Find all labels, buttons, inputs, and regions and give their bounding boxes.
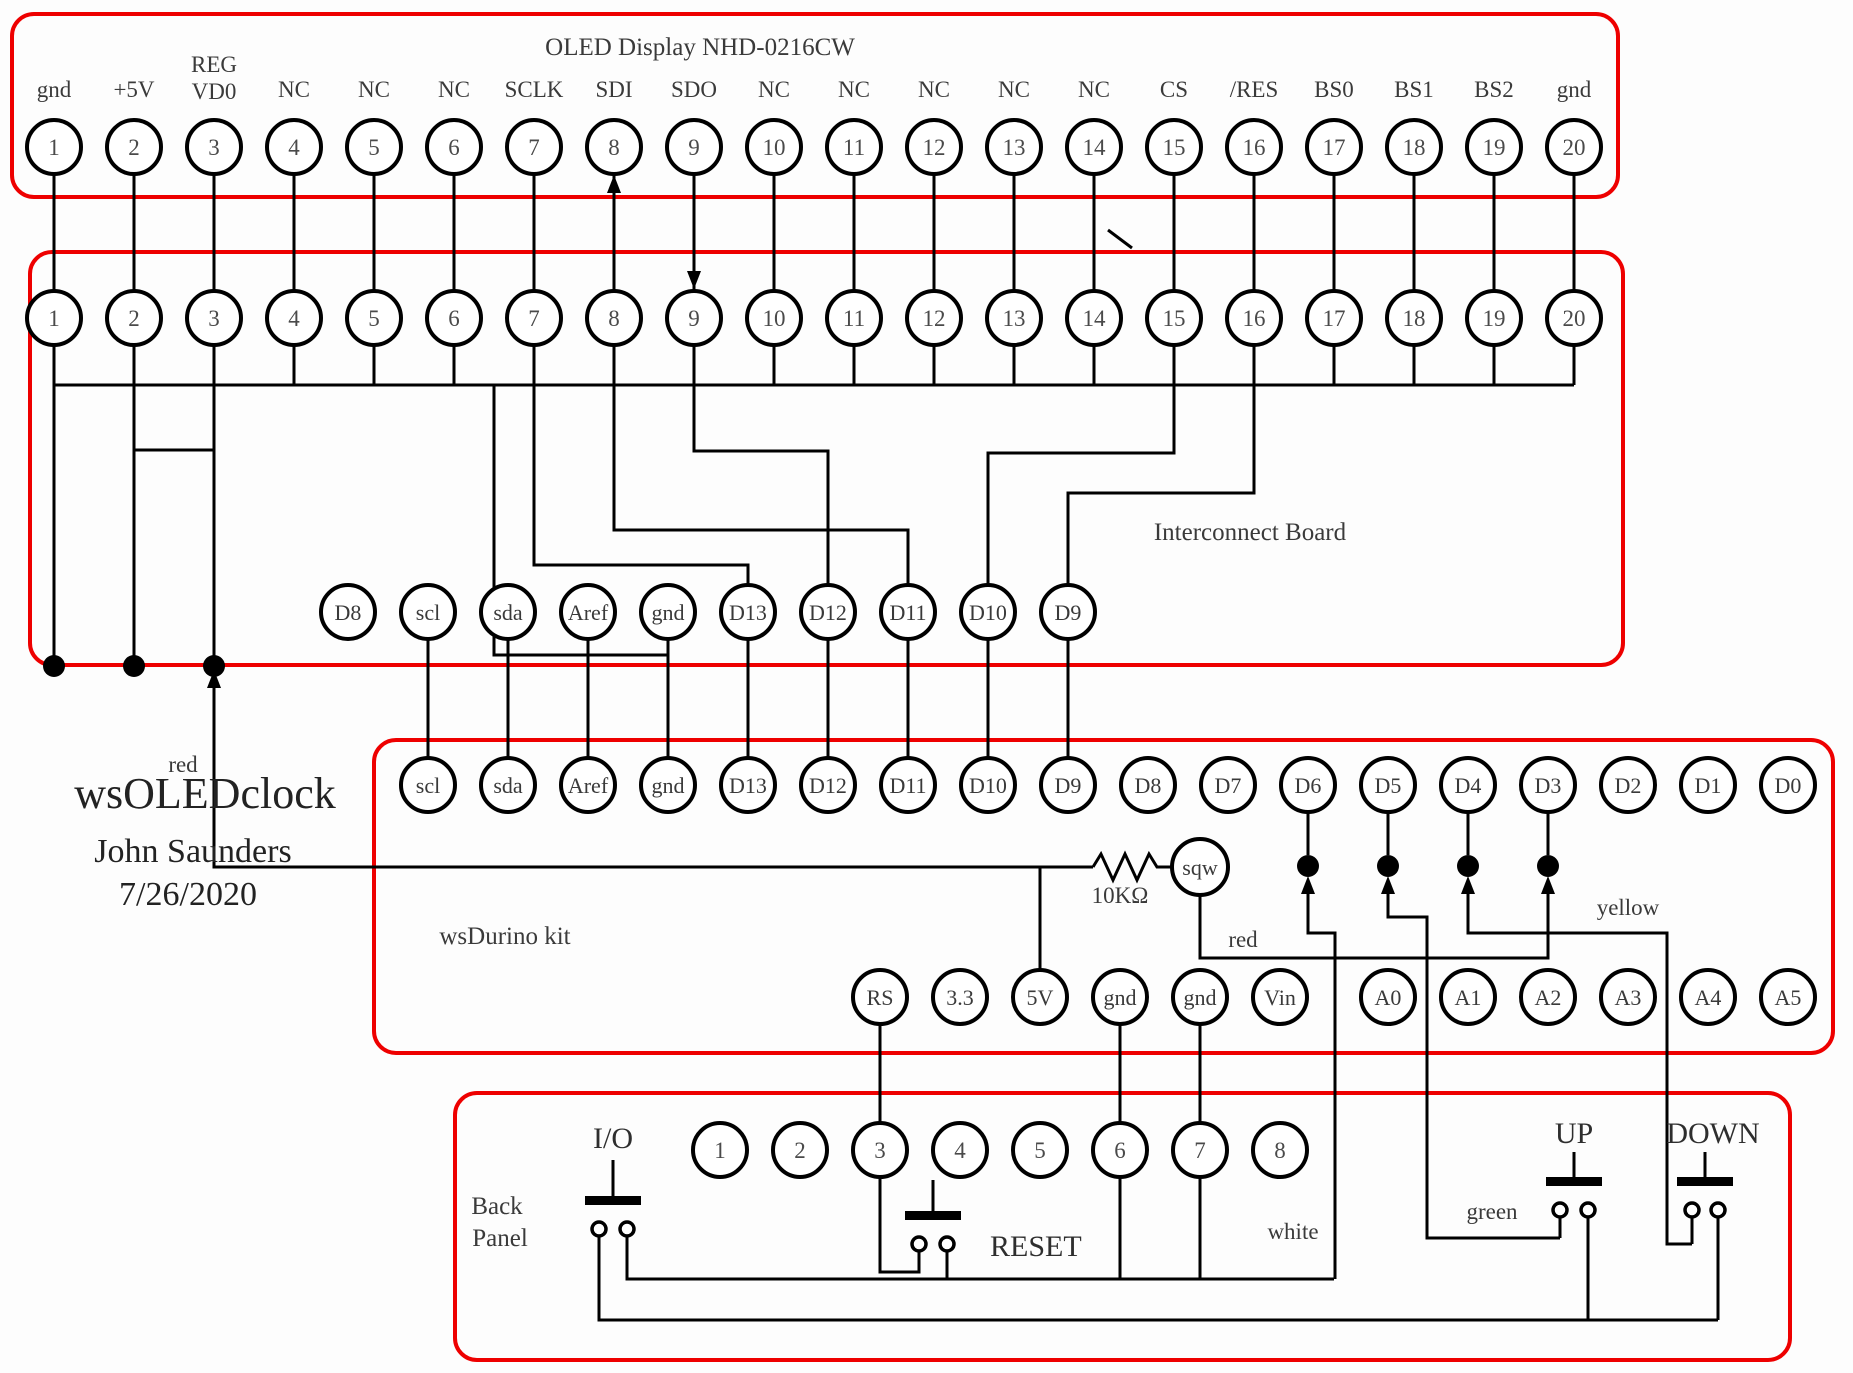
svg-text:NC: NC bbox=[758, 77, 790, 102]
red-wire-label-right: red bbox=[1228, 927, 1258, 952]
svg-text:/RES: /RES bbox=[1230, 77, 1279, 102]
svg-text:2: 2 bbox=[128, 306, 140, 331]
svg-text:D5: D5 bbox=[1375, 773, 1402, 798]
arrow-up-icon bbox=[1301, 876, 1315, 894]
wsdurino-to-backpanel-wires bbox=[599, 1024, 1718, 1320]
svg-text:A2: A2 bbox=[1535, 985, 1562, 1010]
svg-text:16: 16 bbox=[1243, 306, 1266, 331]
svg-text:7: 7 bbox=[528, 135, 540, 160]
svg-text:8: 8 bbox=[608, 135, 620, 160]
pin3-to-reset-wire bbox=[880, 1177, 919, 1272]
svg-text:gnd: gnd bbox=[1557, 77, 1592, 102]
wsdurino-title: wsDurino kit bbox=[439, 923, 570, 950]
svg-text:7: 7 bbox=[1194, 1138, 1206, 1163]
svg-text:4: 4 bbox=[288, 135, 300, 160]
svg-text:A4: A4 bbox=[1695, 985, 1722, 1010]
svg-text:Aref: Aref bbox=[568, 600, 609, 625]
svg-text:scl: scl bbox=[416, 600, 440, 625]
svg-text:SDO: SDO bbox=[671, 77, 717, 102]
res-to-d9-wire bbox=[1068, 345, 1254, 585]
svg-text:D0: D0 bbox=[1775, 773, 1802, 798]
svg-text:scl: scl bbox=[416, 773, 440, 798]
reset-switch-label: RESET bbox=[990, 1230, 1082, 1263]
svg-text:Aref: Aref bbox=[568, 773, 609, 798]
up-switch: UP bbox=[1546, 1117, 1602, 1217]
project-date: 7/26/2020 bbox=[119, 876, 257, 913]
svg-text:D4: D4 bbox=[1455, 773, 1482, 798]
svg-text:gnd: gnd bbox=[1184, 985, 1217, 1010]
resistor-10k bbox=[1093, 854, 1172, 880]
svg-text:1: 1 bbox=[48, 306, 60, 331]
svg-text:2: 2 bbox=[794, 1138, 806, 1163]
svg-text:4: 4 bbox=[954, 1138, 966, 1163]
svg-text:SDI: SDI bbox=[595, 77, 632, 102]
switch-terminal bbox=[620, 1222, 634, 1236]
svg-text:17: 17 bbox=[1323, 306, 1346, 331]
svg-text:NC: NC bbox=[1078, 77, 1110, 102]
svg-text:gnd: gnd bbox=[652, 773, 685, 798]
oled-pin-labels: OLED Display NHD-0216CW gnd +5V REG VD0 … bbox=[37, 34, 1592, 104]
svg-text:18: 18 bbox=[1403, 306, 1426, 331]
interconnect-title: Interconnect Board bbox=[1154, 519, 1347, 546]
white-wire-label: white bbox=[1267, 1219, 1318, 1244]
svg-text:D12: D12 bbox=[809, 600, 847, 625]
wsdurino-top-row: scl sda Aref gnd D13 D12 D11 D10 D9 D8 D… bbox=[401, 758, 1815, 812]
svg-text:BS1: BS1 bbox=[1394, 77, 1434, 102]
svg-text:9: 9 bbox=[688, 135, 700, 160]
sclk-to-d13-wire bbox=[534, 345, 748, 585]
junction-dot bbox=[1297, 855, 1319, 877]
svg-text:D8: D8 bbox=[335, 600, 362, 625]
svg-text:D3: D3 bbox=[1535, 773, 1562, 798]
svg-text:A5: A5 bbox=[1775, 985, 1802, 1010]
svg-text:3: 3 bbox=[874, 1138, 886, 1163]
svg-text:8: 8 bbox=[1274, 1138, 1286, 1163]
reg-label-line1: REG bbox=[191, 52, 237, 77]
svg-text:A1: A1 bbox=[1455, 985, 1482, 1010]
svg-text:5: 5 bbox=[368, 306, 380, 331]
reg-label-line2: VD0 bbox=[192, 79, 237, 104]
svg-text:15: 15 bbox=[1163, 306, 1186, 331]
svg-text:D10: D10 bbox=[969, 773, 1007, 798]
svg-text:D11: D11 bbox=[889, 600, 926, 625]
diagram-canvas: OLED Display NHD-0216CW gnd +5V REG VD0 … bbox=[0, 0, 1853, 1373]
title-block: wsOLEDclock John Saunders 7/26/2020 bbox=[74, 769, 336, 913]
arrow-up-icon bbox=[1381, 876, 1395, 894]
cs-to-d10-wire bbox=[988, 345, 1174, 585]
svg-text:20: 20 bbox=[1563, 135, 1586, 160]
svg-text:NC: NC bbox=[358, 77, 390, 102]
svg-text:6: 6 bbox=[448, 306, 460, 331]
svg-text:13: 13 bbox=[1003, 135, 1026, 160]
svg-text:20: 20 bbox=[1563, 306, 1586, 331]
yellow-wire-d4-to-down bbox=[1468, 892, 1692, 1244]
svg-text:D2: D2 bbox=[1615, 773, 1642, 798]
svg-text:gnd: gnd bbox=[1104, 985, 1137, 1010]
svg-text:7: 7 bbox=[528, 306, 540, 331]
oled-to-interconnect-wires bbox=[54, 174, 1574, 291]
yellow-wire-label: yellow bbox=[1597, 895, 1660, 920]
sdo-to-d12-wire bbox=[694, 345, 828, 585]
svg-text:D9: D9 bbox=[1055, 773, 1082, 798]
svg-text:gnd: gnd bbox=[37, 77, 72, 102]
svg-text:2: 2 bbox=[128, 135, 140, 160]
svg-text:D11: D11 bbox=[889, 773, 926, 798]
svg-text:D7: D7 bbox=[1215, 773, 1242, 798]
switch-terminal bbox=[912, 1237, 926, 1251]
svg-text:12: 12 bbox=[923, 135, 946, 160]
svg-text:CS: CS bbox=[1160, 77, 1188, 102]
junction-dot bbox=[1537, 855, 1559, 877]
arrow-up-icon bbox=[1461, 876, 1475, 894]
switch-terminal bbox=[940, 1237, 954, 1251]
svg-text:10: 10 bbox=[763, 135, 786, 160]
svg-text:SCLK: SCLK bbox=[505, 77, 564, 102]
oled-pin-row: 1 2 3 4 5 6 7 8 9 10 11 12 13 14 15 16 1… bbox=[27, 120, 1601, 174]
author-name: John Saunders bbox=[94, 833, 291, 870]
svg-text:4: 4 bbox=[288, 306, 300, 331]
sqw-group: sqw 10KΩ wsDurino kit bbox=[439, 839, 1228, 950]
project-title: wsOLEDclock bbox=[74, 769, 336, 818]
io-switch: I/O bbox=[585, 1122, 641, 1236]
svg-text:1: 1 bbox=[714, 1138, 726, 1163]
svg-text:17: 17 bbox=[1323, 135, 1346, 160]
svg-text:D9: D9 bbox=[1055, 600, 1082, 625]
svg-text:14: 14 bbox=[1083, 306, 1107, 331]
green-wire-label: green bbox=[1466, 1199, 1518, 1224]
reset-switch: RESET bbox=[905, 1180, 1082, 1263]
svg-text:D6: D6 bbox=[1295, 773, 1322, 798]
svg-text:10: 10 bbox=[763, 306, 786, 331]
svg-text:Vin: Vin bbox=[1264, 985, 1296, 1010]
switch-terminal bbox=[1711, 1203, 1725, 1217]
gnd-bus-backpanel-wire bbox=[627, 1236, 1334, 1279]
svg-text:16: 16 bbox=[1243, 135, 1266, 160]
svg-text:19: 19 bbox=[1483, 306, 1506, 331]
resistor-value-label: 10KΩ bbox=[1092, 883, 1149, 908]
svg-text:3: 3 bbox=[208, 306, 220, 331]
svg-text:D13: D13 bbox=[729, 600, 767, 625]
stray-mark bbox=[1108, 230, 1132, 248]
junction-dot bbox=[123, 655, 145, 677]
svg-text:12: 12 bbox=[923, 306, 946, 331]
sqw-label: sqw bbox=[1182, 855, 1218, 880]
interconnect-header-row: D8 scl sda Aref gnd D13 D12 D11 D10 D9 bbox=[321, 585, 1095, 639]
svg-text:sda: sda bbox=[493, 773, 523, 798]
svg-text:19: 19 bbox=[1483, 135, 1506, 160]
up-switch-label: UP bbox=[1555, 1117, 1593, 1150]
switch-terminal bbox=[1581, 1203, 1595, 1217]
svg-text:RS: RS bbox=[867, 985, 894, 1010]
svg-text:D13: D13 bbox=[729, 773, 767, 798]
svg-text:14: 14 bbox=[1083, 135, 1107, 160]
svg-text:NC: NC bbox=[438, 77, 470, 102]
svg-text:1: 1 bbox=[48, 135, 60, 160]
sdi-to-d11-wire bbox=[614, 345, 908, 585]
svg-text:NC: NC bbox=[838, 77, 870, 102]
svg-text:gnd: gnd bbox=[652, 600, 685, 625]
svg-text:D12: D12 bbox=[809, 773, 847, 798]
io-switch-label: I/O bbox=[593, 1122, 633, 1155]
svg-text:BS0: BS0 bbox=[1314, 77, 1354, 102]
svg-text:3: 3 bbox=[208, 135, 220, 160]
switch-terminal bbox=[592, 1222, 606, 1236]
svg-text:D8: D8 bbox=[1135, 773, 1162, 798]
junction-dot bbox=[1457, 855, 1479, 877]
down-switch-label: DOWN bbox=[1666, 1117, 1759, 1150]
oled-title: OLED Display NHD-0216CW bbox=[545, 34, 855, 61]
svg-text:5V: 5V bbox=[1027, 985, 1054, 1010]
svg-text:A0: A0 bbox=[1375, 985, 1402, 1010]
green-wire-d5-to-up bbox=[1388, 892, 1560, 1238]
switch-terminal bbox=[1553, 1203, 1567, 1217]
svg-text:D1: D1 bbox=[1695, 773, 1722, 798]
svg-text:18: 18 bbox=[1403, 135, 1426, 160]
svg-text:11: 11 bbox=[843, 135, 865, 160]
wiring-diagram: OLED Display NHD-0216CW gnd +5V REG VD0 … bbox=[0, 0, 1853, 1373]
backpanel-title-line2: Panel bbox=[472, 1225, 528, 1252]
svg-text:6: 6 bbox=[448, 135, 460, 160]
svg-text:5: 5 bbox=[1034, 1138, 1046, 1163]
svg-text:NC: NC bbox=[918, 77, 950, 102]
svg-text:D10: D10 bbox=[969, 600, 1007, 625]
svg-text:A3: A3 bbox=[1615, 985, 1642, 1010]
backpanel-title-line1: Back bbox=[471, 1193, 523, 1220]
arrow-down-icon bbox=[687, 271, 701, 289]
junction-dot bbox=[1377, 855, 1399, 877]
red-power-net-wires bbox=[207, 670, 1555, 970]
svg-text:NC: NC bbox=[998, 77, 1030, 102]
svg-text:15: 15 bbox=[1163, 135, 1186, 160]
svg-text:13: 13 bbox=[1003, 306, 1026, 331]
svg-text:9: 9 bbox=[688, 306, 700, 331]
svg-text:11: 11 bbox=[843, 306, 865, 331]
svg-text:5: 5 bbox=[368, 135, 380, 160]
svg-text:sda: sda bbox=[493, 600, 523, 625]
switch-terminal bbox=[1685, 1203, 1699, 1217]
svg-text:8: 8 bbox=[608, 306, 620, 331]
arrow-up-icon bbox=[607, 175, 621, 193]
svg-text:BS2: BS2 bbox=[1474, 77, 1514, 102]
svg-text:3.3: 3.3 bbox=[946, 985, 974, 1010]
svg-text:+5V: +5V bbox=[113, 77, 154, 102]
down-switch: DOWN bbox=[1666, 1117, 1759, 1217]
svg-text:6: 6 bbox=[1114, 1138, 1126, 1163]
svg-text:NC: NC bbox=[278, 77, 310, 102]
wire-color-labels: red red yellow green white bbox=[168, 752, 1659, 1244]
arrow-up-icon bbox=[1541, 876, 1555, 894]
junction-dot bbox=[43, 655, 65, 677]
interconnect-pin-row: 1 2 3 4 5 6 7 8 9 10 11 12 13 14 15 16 1… bbox=[27, 291, 1601, 546]
